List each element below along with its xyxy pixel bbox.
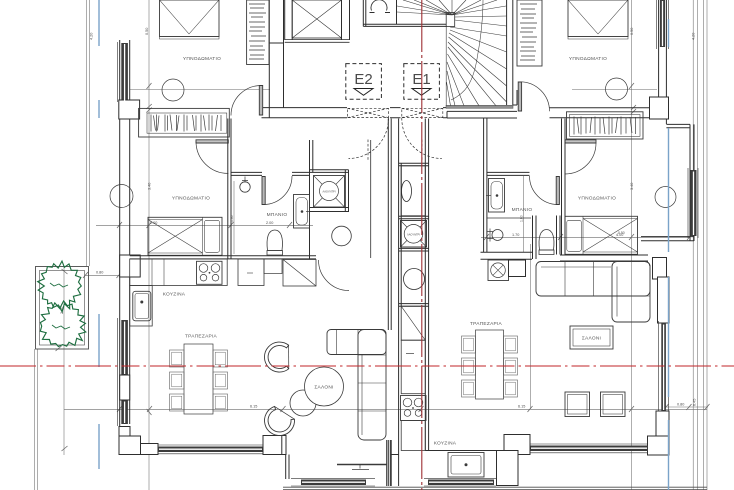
svg-text:4.20: 4.20 <box>90 33 94 40</box>
svg-text:ΥΠΝΟΔΩΜΑΤΙΟ: ΥΠΝΟΔΩΜΑΤΙΟ <box>578 196 616 202</box>
svg-text:ΤΡΑΠΕΖΑΡΙΑ: ΤΡΑΠΕΖΑΡΙΑ <box>470 321 503 327</box>
svg-text:ΜΠΑΝΙΟ: ΜΠΑΝΙΟ <box>267 212 288 218</box>
svg-text:0.50: 0.50 <box>630 28 634 35</box>
svg-text:1.70: 1.70 <box>512 233 519 237</box>
svg-text:0.50: 0.50 <box>618 231 625 235</box>
svg-text:0.80: 0.80 <box>677 403 684 407</box>
svg-text:ΣΑΛΟΝΙ: ΣΑΛΟΝΙ <box>314 385 333 391</box>
svg-text:6.15: 6.15 <box>518 405 525 409</box>
svg-text:ΛΑΟΥΝΤΡΙ: ΛΑΟΥΝΤΡΙ <box>323 189 336 193</box>
svg-text:2.00: 2.00 <box>266 221 273 225</box>
svg-text:6.15: 6.15 <box>250 405 257 409</box>
svg-text:0.50: 0.50 <box>145 28 149 35</box>
svg-text:3.40: 3.40 <box>148 183 152 190</box>
svg-text:ΜΠΑΝΙΟ: ΜΠΑΝΙΟ <box>512 207 533 213</box>
svg-text:6.45: 6.45 <box>693 399 697 406</box>
svg-text:ΚΟΥΖΙΝΑ: ΚΟΥΖΙΝΑ <box>163 292 186 298</box>
svg-text:ΥΠΝΟΔΩΜΑΤΙΟ: ΥΠΝΟΔΩΜΑΤΙΟ <box>569 56 607 62</box>
svg-text:E2: E2 <box>354 71 372 88</box>
svg-text:ΚΟΥΖΙΝΑ: ΚΟΥΖΙΝΑ <box>434 441 457 447</box>
svg-text:0.80: 0.80 <box>96 271 103 275</box>
svg-text:4.20: 4.20 <box>692 33 696 40</box>
svg-text:ΣΑΛΟΝΙ: ΣΑΛΟΝΙ <box>582 336 601 342</box>
svg-text:ΛΑΟΥΝΤΡΙ: ΛΑΟΥΝΤΡΙ <box>407 232 420 236</box>
svg-text:3.40: 3.40 <box>630 183 634 190</box>
svg-text:ΤΡΑΠΕΖΑΡΙΑ: ΤΡΑΠΕΖΑΡΙΑ <box>185 334 218 340</box>
svg-text:ΥΠΝΟΔΩΜΑΤΙΟ: ΥΠΝΟΔΩΜΑΤΙΟ <box>183 56 221 62</box>
svg-text:1.60: 1.60 <box>520 215 524 222</box>
svg-text:ΥΠΝΟΔΩΜΑΤΙΟ: ΥΠΝΟΔΩΜΑΤΙΟ <box>172 196 210 202</box>
